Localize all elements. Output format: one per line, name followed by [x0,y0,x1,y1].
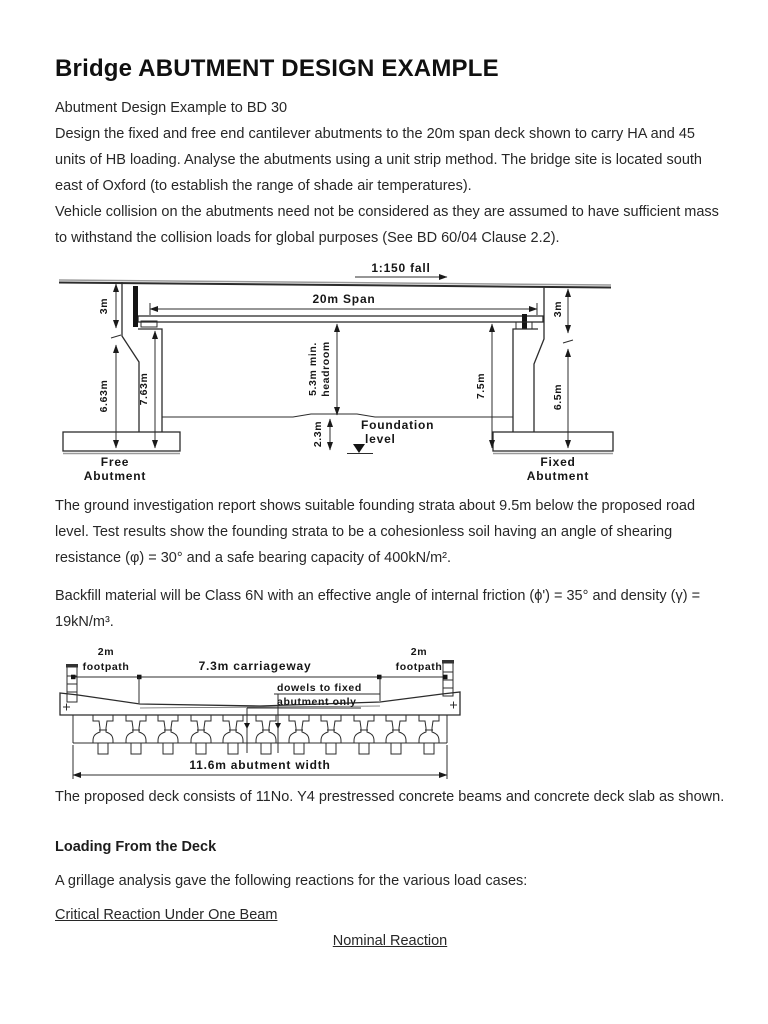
document-page: Bridge ABUTMENT DESIGN EXAMPLE Abutment … [0,0,768,1024]
dim-tick-1 [71,675,76,680]
free-abutment-label-line2: Abutment [84,469,146,483]
critical-reaction-heading: Critical Reaction Under One Beam [55,907,277,923]
dowels-note-line2: abutment only [277,696,357,708]
intro-paragraph: Design the fixed and free end cantilever… [55,121,725,199]
collision-paragraph: Vehicle collision on the abutments need … [55,199,725,251]
fixed-abutment-label-line1: Fixed [540,455,575,469]
free-upper-dim-label: 3m [98,298,110,314]
nominal-reaction-block: Nominal Reaction [55,928,725,954]
ground-block: The ground investigation report shows su… [55,493,725,571]
headroom-label-line1: 5.3m min. [307,342,319,396]
free-stem-dim-label: 6.63m [98,380,110,413]
free-abutment-label-line1: Free [101,455,130,469]
free-total-dim-label: 7.63m [138,373,150,406]
abutment-width-label: 11.6m abutment width [189,758,330,772]
page-content: Bridge ABUTMENT DESIGN EXAMPLE Abutment … [0,0,768,954]
right-footpath-label-line2: footpath [396,661,443,673]
left-footpath-label-line1: 2m [98,646,114,658]
page-title: Bridge ABUTMENT DESIGN EXAMPLE [55,0,725,83]
backfill-paragraph: Backfill material will be Class 6N with … [55,583,725,635]
right-footpath-label-line1: 2m [411,646,427,658]
right-survey-mark [450,702,457,709]
section-diagram-wrapper: 2m footpath 7.3m carriageway 2m footpath… [55,639,725,782]
fall-label: 1:150 fall [371,261,430,275]
foundation-dim-label: 2.3m [312,421,324,447]
carriageway-label: 7.3m carriageway [199,659,312,673]
dim-tick-4 [443,675,448,680]
foundation-level-marker [353,444,365,453]
y4-beams [93,715,439,754]
deck-block: The proposed deck consists of 11No. Y4 p… [55,784,725,810]
free-abutment-footing [63,432,180,451]
intro-heading: Abutment Design Example to BD 30 [55,95,725,121]
dowel-arrow-left [244,723,250,729]
loading-paragraph: A grillage analysis gave the following r… [55,868,725,894]
elevation-diagram-wrapper: 1:150 fall 20m Span [55,259,725,485]
left-survey-mark [63,704,70,711]
deck-outline [138,316,543,322]
foundation-label-line1: Foundation [361,418,434,432]
left-parapet [66,664,78,702]
fixed-abutment-footing [493,432,613,451]
fixed-stem-dim-label: 6.5m [552,384,564,410]
fixed-total-dim-label: 7.5m [475,373,487,399]
left-footpath-label-line2: footpath [83,661,130,673]
dim-tick-3 [377,675,382,680]
span-label: 20m Span [312,292,375,306]
dowels-note-line1: dowels to fixed [277,682,362,694]
nominal-reaction-heading: Nominal Reaction [333,933,447,949]
deck-section-diagram: 2m footpath 7.3m carriageway 2m footpath… [55,639,475,782]
loading-block: A grillage analysis gave the following r… [55,868,725,894]
foundation-label-line2: level [365,432,396,446]
headroom-label-line2: headroom [320,341,332,397]
ground-paragraph: The ground investigation report shows su… [55,493,725,571]
loading-heading: Loading From the Deck [55,834,725,860]
fixed-dim-break-tick [563,340,573,343]
free-abutment-curtain-wall [133,286,138,327]
intro-block: Abutment Design Example to BD 30 Design … [55,95,725,251]
free-dim-break-tick [111,335,121,338]
backfill-block: Backfill material will be Class 6N with … [55,583,725,635]
critical-reaction-block: Critical Reaction Under One Beam [55,902,725,928]
fixed-upper-dim-label: 3m [552,301,564,317]
elevation-diagram: 1:150 fall 20m Span [55,259,655,485]
fixed-abutment-label-line2: Abutment [527,469,589,483]
deck-slab-outline [60,692,460,715]
dowel-arrow-right [275,723,281,729]
deck-paragraph: The proposed deck consists of 11No. Y4 p… [55,784,725,810]
